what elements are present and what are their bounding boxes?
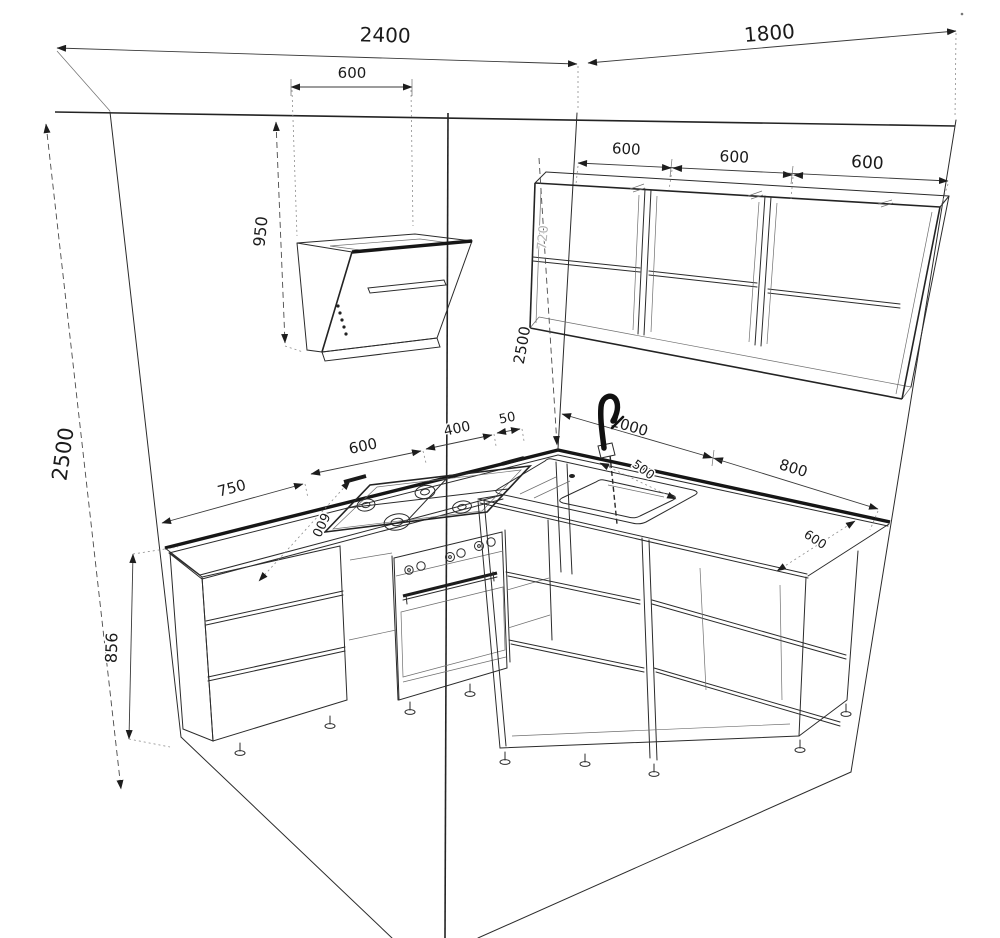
rcab-divider-post	[642, 538, 657, 760]
kitchen-dimension-drawing: 2400 1800 600 950 2500 2500 856 600 600	[0, 0, 1000, 938]
wall-cab-right-edge	[902, 207, 940, 399]
hatch-marks	[630, 184, 893, 207]
hood-front-left-edge	[322, 252, 352, 352]
wall-cab-bottom-front	[530, 328, 902, 399]
dimension-hood-600: 600	[291, 64, 413, 236]
dim-label-left-depth-600: 600	[308, 510, 332, 539]
dimension-2500-corner: 2500	[510, 158, 557, 445]
dimension-counter-left: 750 600 400 50	[162, 410, 524, 523]
dim-label-2400: 2400	[359, 22, 411, 47]
rcab-shelf-b1	[652, 600, 846, 659]
dim-label-2500-corner: 2500	[510, 325, 534, 366]
feet-left-run	[235, 684, 475, 755]
faucet-spout	[601, 396, 618, 448]
dim-label-2500-left: 2500	[47, 426, 78, 482]
hood-left-side	[297, 243, 322, 352]
dimension-right-depth: 600	[777, 521, 855, 571]
corner-slant-line	[558, 113, 577, 449]
dim-label-750: 750	[216, 476, 248, 501]
dim-label-500: 500	[630, 456, 658, 482]
sink-bowl	[560, 480, 676, 518]
rcab-shelf-a2	[509, 640, 644, 672]
dim-label-1800: 1800	[743, 19, 796, 47]
dim-label-upper-600-2: 600	[719, 147, 749, 167]
dim-label-upper-600-1: 600	[611, 139, 641, 158]
wall-cab-shelf-3	[768, 289, 900, 308]
countertop-right	[478, 450, 890, 578]
hood-handle	[368, 280, 446, 293]
dimension-1800: 1800	[588, 19, 956, 118]
dim-label-950: 950	[249, 215, 271, 247]
dimension-2500-left: 2500	[46, 124, 121, 789]
counter-right-back-edge	[558, 450, 890, 522]
hood-buttons	[336, 304, 347, 335]
dimension-sink-run: 1000	[562, 412, 724, 466]
stray-dot	[961, 13, 964, 16]
wall-cabinets	[530, 172, 949, 399]
hood-chassis	[322, 338, 440, 361]
drawing-canvas: 2400 1800 600 950 2500 2500 856 600 600	[0, 0, 1000, 938]
dim-label-hood-600: 600	[338, 64, 367, 82]
dimension-2400: 2400	[57, 22, 578, 111]
right-wall-edge	[851, 120, 956, 772]
dim-label-right-depth-600: 600	[801, 526, 829, 552]
base-cabinets-right	[478, 500, 858, 776]
rcab-shelf-b2	[654, 668, 840, 726]
dim-label-50: 50	[498, 410, 517, 428]
wall-corner-line	[445, 113, 448, 938]
dimension-856: 856	[101, 547, 178, 747]
cab750-drawer-line-1	[206, 591, 343, 625]
room-structure	[55, 13, 963, 938]
range-hood	[297, 234, 472, 361]
faucet-base	[598, 443, 615, 458]
floor-left-line	[181, 737, 392, 938]
dim-label-800: 800	[777, 455, 810, 481]
wall-cab-top-back	[546, 172, 949, 196]
dim-label-upper-600-3: 600	[850, 152, 884, 174]
rcab-shelf-a1	[506, 572, 640, 604]
ceiling-line	[55, 112, 955, 126]
dim-label-856: 856	[101, 632, 121, 663]
base-cabinet-corner	[505, 462, 572, 662]
dim-label-720: 720	[535, 225, 552, 251]
cab750-front	[202, 546, 347, 741]
floor-right-line	[478, 772, 851, 938]
sink-drain	[569, 474, 575, 478]
dim-label-hob-600: 600	[347, 434, 379, 458]
wall-cab-divider-1	[638, 189, 651, 335]
rcab-right-side	[799, 551, 858, 736]
hood-front-face	[322, 241, 472, 352]
adjustable-feet	[500, 704, 851, 776]
dimension-950: 950	[249, 122, 303, 352]
cab750-drawer-line-2	[208, 647, 345, 681]
wall-cab-shelf-2	[649, 271, 757, 287]
wall-cab-shelf-1	[533, 257, 640, 272]
wall-cab-left-edge	[530, 183, 535, 328]
corner-posts	[556, 462, 572, 574]
oven-handle	[403, 573, 497, 596]
